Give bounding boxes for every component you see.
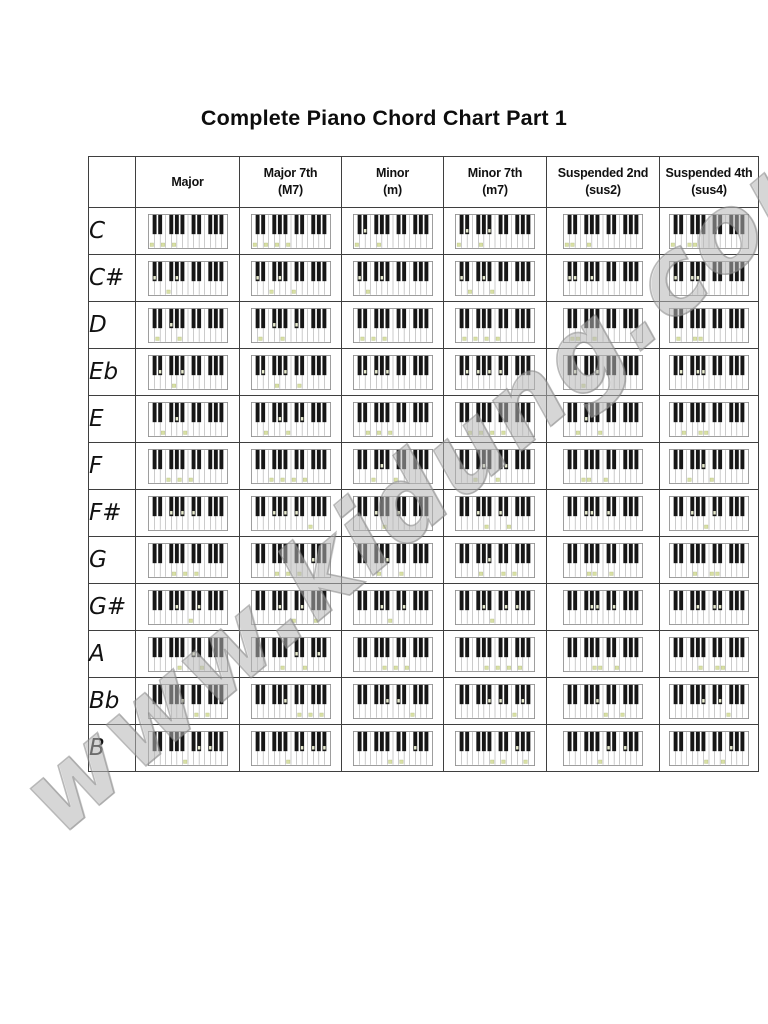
row-label: B: [89, 725, 136, 772]
chord-cell: [342, 255, 444, 302]
piano-keyboard-diagram: [563, 731, 643, 766]
chord-cell: [342, 208, 444, 255]
chord-cell: [660, 255, 759, 302]
chord-cell: [547, 490, 660, 537]
piano-keyboard-diagram: [669, 496, 749, 531]
piano-keyboard-diagram: [455, 261, 535, 296]
chord-cell: [547, 631, 660, 678]
piano-keyboard-diagram: [669, 308, 749, 343]
piano-keyboard-diagram: [563, 214, 643, 249]
column-header-M7: Major 7th(M7): [240, 157, 342, 208]
chord-cell: [240, 208, 342, 255]
piano-keyboard-diagram: [353, 214, 433, 249]
chord-cell: [444, 349, 547, 396]
piano-keyboard-diagram: [251, 543, 331, 578]
column-header-label: Minor: [342, 165, 443, 182]
chord-cell: [444, 443, 547, 490]
chord-cell: [136, 631, 240, 678]
chord-cell: [342, 443, 444, 490]
chord-row-C#: C#: [89, 255, 759, 302]
piano-keyboard-diagram: [455, 731, 535, 766]
chord-cell: [547, 584, 660, 631]
chord-cell: [240, 725, 342, 772]
chord-row-Eb: Eb: [89, 349, 759, 396]
chord-table: MajorMajor 7th(M7)Minor(m)Minor 7th(m7)S…: [88, 156, 759, 772]
chord-cell: [444, 396, 547, 443]
piano-keyboard-diagram: [148, 402, 228, 437]
chord-cell: [240, 631, 342, 678]
piano-keyboard-diagram: [251, 402, 331, 437]
chord-row-Bb: Bb: [89, 678, 759, 725]
chord-cell: [136, 208, 240, 255]
page-title: Complete Piano Chord Chart Part 1: [0, 106, 768, 131]
piano-keyboard-diagram: [353, 355, 433, 390]
piano-keyboard-diagram: [148, 355, 228, 390]
chord-cell: [660, 302, 759, 349]
piano-keyboard-diagram: [563, 308, 643, 343]
row-label: Bb: [89, 678, 136, 725]
piano-keyboard-diagram: [563, 590, 643, 625]
chord-cell: [136, 302, 240, 349]
row-label: C: [89, 208, 136, 255]
piano-keyboard-diagram: [148, 590, 228, 625]
chord-cell: [660, 725, 759, 772]
piano-keyboard-diagram: [148, 543, 228, 578]
chord-cell: [240, 584, 342, 631]
piano-keyboard-diagram: [669, 731, 749, 766]
chord-cell: [660, 678, 759, 725]
piano-keyboard-diagram: [353, 261, 433, 296]
piano-keyboard-diagram: [455, 590, 535, 625]
piano-keyboard-diagram: [353, 731, 433, 766]
chord-cell: [240, 490, 342, 537]
chord-row-F#: F#: [89, 490, 759, 537]
column-header-label: Minor 7th: [444, 165, 546, 182]
piano-keyboard-diagram: [251, 637, 331, 672]
chord-row-E: E: [89, 396, 759, 443]
piano-keyboard-diagram: [353, 496, 433, 531]
chord-cell: [342, 725, 444, 772]
piano-keyboard-diagram: [455, 637, 535, 672]
column-header-: Major: [136, 157, 240, 208]
row-label: A: [89, 631, 136, 678]
chord-cell: [240, 443, 342, 490]
piano-keyboard-diagram: [353, 543, 433, 578]
chord-cell: [660, 631, 759, 678]
piano-keyboard-diagram: [251, 590, 331, 625]
chord-cell: [342, 584, 444, 631]
corner-cell: [89, 157, 136, 208]
chord-cell: [136, 255, 240, 302]
piano-keyboard-diagram: [148, 214, 228, 249]
column-header-label: Major: [136, 174, 239, 191]
chord-cell: [136, 584, 240, 631]
column-header-label: Suspended 2nd: [547, 165, 659, 182]
column-header-m: Minor(m): [342, 157, 444, 208]
piano-keyboard-diagram: [669, 214, 749, 249]
chord-cell: [547, 443, 660, 490]
piano-keyboard-diagram: [669, 684, 749, 719]
column-header-sus4: Suspended 4th(sus4): [660, 157, 759, 208]
chord-cell: [240, 349, 342, 396]
chord-cell: [547, 725, 660, 772]
piano-keyboard-diagram: [669, 355, 749, 390]
row-label: F#: [89, 490, 136, 537]
chord-cell: [136, 678, 240, 725]
chord-cell: [547, 349, 660, 396]
piano-keyboard-diagram: [251, 308, 331, 343]
column-header-label: Suspended 4th: [660, 165, 758, 182]
piano-keyboard-diagram: [455, 308, 535, 343]
chord-cell: [342, 396, 444, 443]
chord-cell: [660, 584, 759, 631]
piano-keyboard-diagram: [148, 261, 228, 296]
piano-keyboard-diagram: [251, 261, 331, 296]
piano-keyboard-diagram: [455, 449, 535, 484]
piano-keyboard-diagram: [148, 449, 228, 484]
chord-cell: [136, 490, 240, 537]
piano-keyboard-diagram: [353, 449, 433, 484]
row-label: C#: [89, 255, 136, 302]
chord-cell: [444, 302, 547, 349]
chord-cell: [240, 537, 342, 584]
chord-row-G#: G#: [89, 584, 759, 631]
chord-cell: [444, 725, 547, 772]
chord-cell: [444, 678, 547, 725]
piano-keyboard-diagram: [669, 590, 749, 625]
piano-keyboard-diagram: [353, 308, 433, 343]
chord-row-G: G: [89, 537, 759, 584]
chord-cell: [547, 255, 660, 302]
chord-cell: [547, 537, 660, 584]
piano-keyboard-diagram: [455, 543, 535, 578]
column-header-sublabel: (sus2): [547, 182, 659, 199]
chord-cell: [660, 396, 759, 443]
piano-keyboard-diagram: [251, 684, 331, 719]
piano-keyboard-diagram: [148, 496, 228, 531]
piano-keyboard-diagram: [563, 449, 643, 484]
chord-cell: [660, 537, 759, 584]
piano-keyboard-diagram: [251, 214, 331, 249]
row-label: G: [89, 537, 136, 584]
chord-cell: [342, 537, 444, 584]
chord-cell: [547, 396, 660, 443]
chord-row-D: D: [89, 302, 759, 349]
chord-cell: [240, 302, 342, 349]
chord-cell: [660, 349, 759, 396]
column-header-sublabel: (m7): [444, 182, 546, 199]
piano-keyboard-diagram: [148, 684, 228, 719]
chord-cell: [240, 678, 342, 725]
piano-keyboard-diagram: [669, 637, 749, 672]
chord-cell: [136, 396, 240, 443]
piano-keyboard-diagram: [455, 684, 535, 719]
piano-keyboard-diagram: [563, 684, 643, 719]
piano-keyboard-diagram: [669, 543, 749, 578]
piano-keyboard-diagram: [251, 355, 331, 390]
chord-row-B: B: [89, 725, 759, 772]
piano-keyboard-diagram: [455, 214, 535, 249]
chord-cell: [444, 255, 547, 302]
chord-cell: [547, 208, 660, 255]
chord-cell: [444, 490, 547, 537]
chord-row-A: A: [89, 631, 759, 678]
chord-cell: [444, 631, 547, 678]
chord-cell: [444, 208, 547, 255]
piano-keyboard-diagram: [353, 637, 433, 672]
chord-row-C: C: [89, 208, 759, 255]
piano-keyboard-diagram: [669, 402, 749, 437]
chord-table-body: CC#DEbEFF#GG#ABbB: [89, 208, 759, 772]
chord-cell: [136, 725, 240, 772]
piano-keyboard-diagram: [353, 684, 433, 719]
chord-cell: [342, 631, 444, 678]
piano-keyboard-diagram: [669, 449, 749, 484]
column-header-m7: Minor 7th(m7): [444, 157, 547, 208]
piano-keyboard-diagram: [455, 496, 535, 531]
row-label: F: [89, 443, 136, 490]
piano-keyboard-diagram: [251, 731, 331, 766]
header-row: MajorMajor 7th(M7)Minor(m)Minor 7th(m7)S…: [89, 157, 759, 208]
chord-cell: [342, 490, 444, 537]
chord-cell: [660, 490, 759, 537]
chord-cell: [342, 302, 444, 349]
piano-keyboard-diagram: [353, 590, 433, 625]
chord-cell: [240, 255, 342, 302]
piano-keyboard-diagram: [563, 543, 643, 578]
piano-keyboard-diagram: [669, 261, 749, 296]
column-header-sus2: Suspended 2nd(sus2): [547, 157, 660, 208]
chord-cell: [136, 443, 240, 490]
chord-cell: [136, 537, 240, 584]
piano-keyboard-diagram: [455, 355, 535, 390]
piano-keyboard-diagram: [563, 637, 643, 672]
piano-keyboard-diagram: [148, 637, 228, 672]
piano-keyboard-diagram: [455, 402, 535, 437]
row-label: G#: [89, 584, 136, 631]
row-label: E: [89, 396, 136, 443]
piano-keyboard-diagram: [563, 496, 643, 531]
chord-cell: [547, 302, 660, 349]
piano-keyboard-diagram: [563, 261, 643, 296]
chord-cell: [444, 584, 547, 631]
column-header-sublabel: (M7): [240, 182, 341, 199]
piano-keyboard-diagram: [353, 402, 433, 437]
column-header-label: Major 7th: [240, 165, 341, 182]
chord-cell: [660, 443, 759, 490]
chord-cell: [342, 678, 444, 725]
chord-table-header: MajorMajor 7th(M7)Minor(m)Minor 7th(m7)S…: [89, 157, 759, 208]
column-header-sublabel: (sus4): [660, 182, 758, 199]
piano-keyboard-diagram: [563, 402, 643, 437]
piano-keyboard-diagram: [148, 308, 228, 343]
chord-row-F: F: [89, 443, 759, 490]
piano-keyboard-diagram: [148, 731, 228, 766]
piano-keyboard-diagram: [251, 449, 331, 484]
piano-keyboard-diagram: [251, 496, 331, 531]
chord-cell: [444, 537, 547, 584]
chord-cell: [660, 208, 759, 255]
piano-keyboard-diagram: [563, 355, 643, 390]
chord-cell: [240, 396, 342, 443]
row-label: D: [89, 302, 136, 349]
chord-cell: [136, 349, 240, 396]
chord-cell: [547, 678, 660, 725]
chord-cell: [342, 349, 444, 396]
row-label: Eb: [89, 349, 136, 396]
column-header-sublabel: (m): [342, 182, 443, 199]
